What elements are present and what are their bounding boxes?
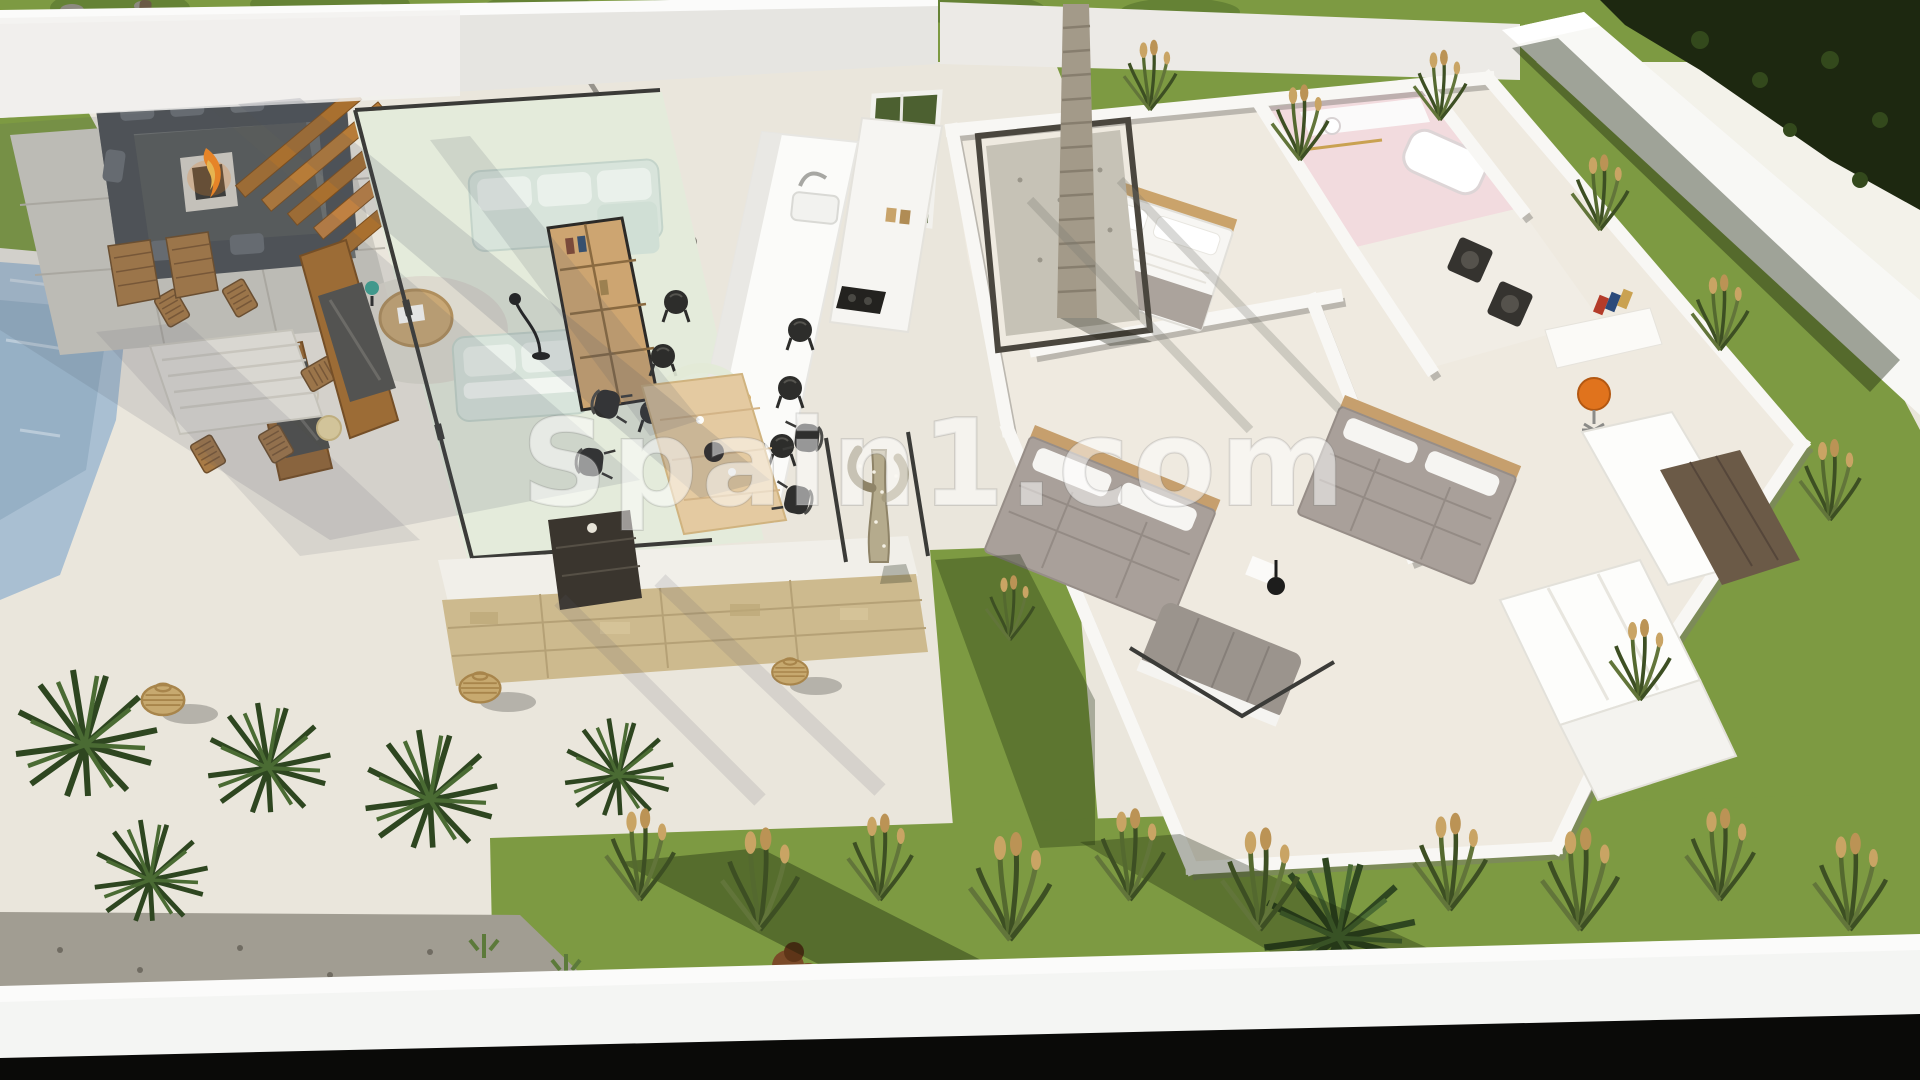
- villa-3d-floorplan-render: Spain1.com: [0, 0, 1920, 1080]
- render-canvas: Spain1.com: [0, 0, 1920, 1080]
- sink: [791, 192, 840, 225]
- watermark: Spain1.com: [521, 395, 1349, 534]
